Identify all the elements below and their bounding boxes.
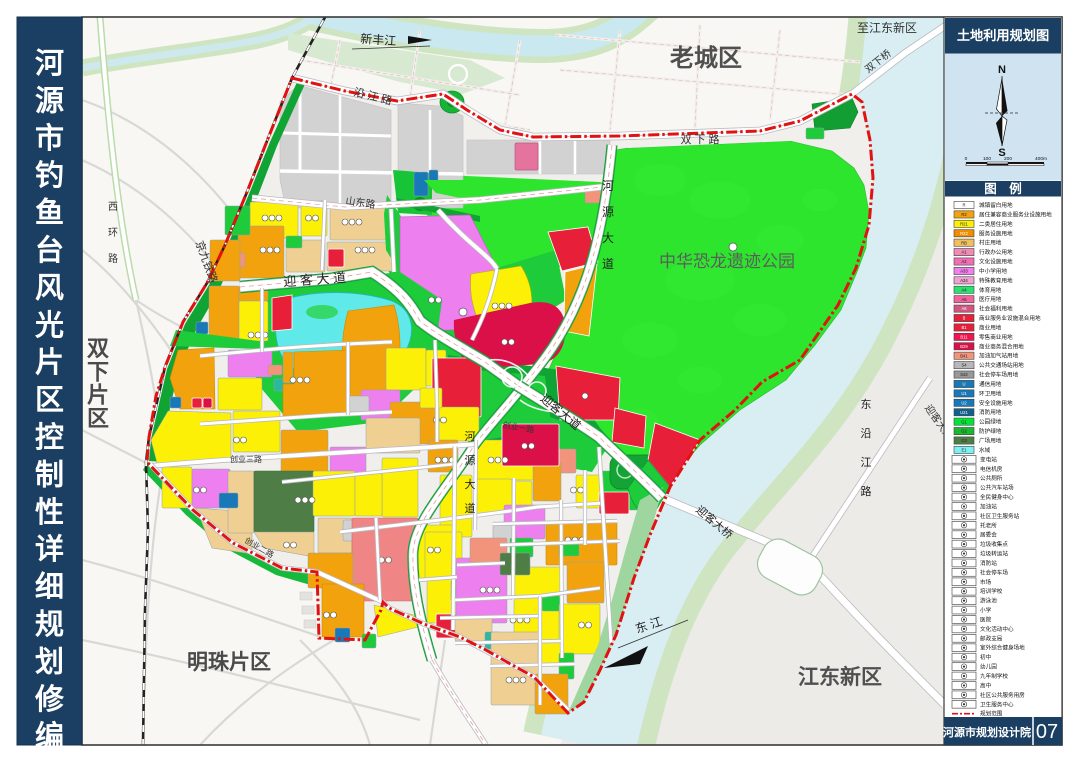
svg-text:片: 片 xyxy=(87,383,109,408)
svg-text:中华恐龙遗迹公园: 中华恐龙遗迹公园 xyxy=(659,252,795,271)
svg-text:R21: R21 xyxy=(960,221,968,226)
svg-text:沿: 沿 xyxy=(861,427,872,440)
svg-text:河: 河 xyxy=(35,47,64,80)
svg-text:片: 片 xyxy=(35,346,64,379)
svg-text:G2: G2 xyxy=(961,429,967,434)
svg-text:规划范围: 规划范围 xyxy=(980,710,1003,718)
svg-text:A1: A1 xyxy=(961,250,967,255)
svg-text:公园绿地: 公园绿地 xyxy=(979,418,1002,426)
svg-text:文化设施用地: 文化设施用地 xyxy=(979,258,1013,266)
svg-text:道: 道 xyxy=(602,257,614,271)
svg-text:培训学校: 培训学校 xyxy=(980,587,1003,595)
svg-text:小学: 小学 xyxy=(980,606,992,614)
svg-text:A4: A4 xyxy=(961,287,967,292)
svg-text:河源市规划设计院: 河源市规划设计院 xyxy=(943,725,1031,739)
svg-text:市: 市 xyxy=(35,121,64,155)
svg-text:控: 控 xyxy=(35,421,64,454)
svg-text:消防站: 消防站 xyxy=(980,559,997,567)
svg-text:创业三路: 创业三路 xyxy=(230,454,262,464)
svg-text:村庄用地: 村庄用地 xyxy=(979,239,1002,247)
svg-text:社区公共服务用房: 社区公共服务用房 xyxy=(980,691,1025,699)
svg-text:文化活动中心: 文化活动中心 xyxy=(980,625,1014,633)
svg-text:商业服务业设施混合用地: 商业服务业设施混合用地 xyxy=(979,314,1041,322)
svg-text:A6: A6 xyxy=(961,306,967,311)
svg-text:托老所: 托老所 xyxy=(980,521,997,529)
svg-text:规: 规 xyxy=(35,608,64,641)
svg-text:双 下 路: 双 下 路 xyxy=(680,133,719,146)
svg-text:特殊教育用地: 特殊教育用地 xyxy=(979,276,1013,284)
svg-text:零售商业用地: 零售商业用地 xyxy=(979,333,1013,341)
svg-text:城镇留白用地: 城镇留白用地 xyxy=(979,201,1013,209)
svg-text:市场: 市场 xyxy=(980,578,992,586)
svg-text:修: 修 xyxy=(34,683,65,716)
svg-text:安全设施用地: 安全设施用地 xyxy=(979,399,1013,407)
svg-text:服务设施用地: 服务设施用地 xyxy=(979,229,1013,237)
svg-text:老城区: 老城区 xyxy=(670,44,742,72)
svg-text:200: 200 xyxy=(1004,156,1012,162)
svg-text:高中: 高中 xyxy=(980,681,992,689)
svg-text:划: 划 xyxy=(35,645,64,678)
svg-text:广场用地: 广场用地 xyxy=(979,437,1002,445)
svg-text:B41: B41 xyxy=(960,353,968,358)
svg-text:体育用地: 体育用地 xyxy=(979,286,1002,294)
svg-text:钓: 钓 xyxy=(35,159,64,192)
svg-text:水域: 水域 xyxy=(979,446,991,454)
svg-text:源: 源 xyxy=(602,205,614,219)
svg-text:道: 道 xyxy=(465,501,476,515)
svg-text:路: 路 xyxy=(108,252,118,265)
svg-text:光: 光 xyxy=(35,309,64,342)
svg-text:B: B xyxy=(963,316,966,321)
svg-text:室外综合健身场地: 室外综合健身场地 xyxy=(980,644,1025,652)
svg-text:区: 区 xyxy=(35,385,64,417)
svg-text:S42: S42 xyxy=(960,372,968,377)
svg-text:幼儿园: 幼儿园 xyxy=(980,663,997,671)
svg-text:R: R xyxy=(962,203,965,208)
svg-text:江东新区: 江东新区 xyxy=(798,665,882,689)
svg-text:性: 性 xyxy=(35,496,64,529)
svg-text:鱼: 鱼 xyxy=(35,197,64,230)
svg-text:U: U xyxy=(962,382,965,387)
svg-text:防护绿地: 防护绿地 xyxy=(979,427,1002,435)
svg-text:河: 河 xyxy=(465,430,476,443)
svg-text:初中: 初中 xyxy=(980,653,992,661)
svg-text:R2: R2 xyxy=(961,212,967,217)
svg-text:医院: 医院 xyxy=(980,615,992,623)
svg-text:细: 细 xyxy=(35,570,64,604)
svg-text:B11: B11 xyxy=(960,334,968,339)
svg-text:A2: A2 xyxy=(961,259,967,264)
svg-text:变电站: 变电站 xyxy=(980,455,997,463)
svg-text:公共汽车站场: 公共汽车站场 xyxy=(980,484,1014,492)
svg-text:社会停车场用地: 社会停车场用地 xyxy=(979,371,1019,379)
svg-text:S4: S4 xyxy=(961,363,967,368)
svg-text:电信机房: 电信机房 xyxy=(980,465,1003,473)
svg-text:商业商务混合用地: 商业商务混合用地 xyxy=(979,342,1024,350)
svg-text:居住兼容商业服务业设施用地: 居住兼容商业服务业设施用地 xyxy=(979,210,1052,218)
svg-text:行政办公用地: 行政办公用地 xyxy=(979,248,1013,256)
svg-text:路: 路 xyxy=(861,485,872,498)
svg-text:通信用地: 通信用地 xyxy=(979,380,1002,388)
svg-text:A34: A34 xyxy=(960,278,968,283)
svg-text:源: 源 xyxy=(35,84,64,117)
svg-text:中小学用地: 中小学用地 xyxy=(979,267,1007,275)
svg-text:0: 0 xyxy=(965,156,968,162)
svg-text:A5: A5 xyxy=(961,297,967,302)
svg-text:邮政支局: 邮政支局 xyxy=(980,634,1003,642)
svg-text:U2: U2 xyxy=(961,400,967,405)
svg-text:加油站: 加油站 xyxy=(980,502,997,510)
svg-text:社区卫生服务站: 社区卫生服务站 xyxy=(980,512,1020,520)
svg-text:明珠片区: 明珠片区 xyxy=(187,651,271,674)
svg-text:源: 源 xyxy=(465,453,476,467)
svg-text:河: 河 xyxy=(602,179,614,193)
svg-text:垃圾转运站: 垃圾转运站 xyxy=(980,550,1008,558)
svg-text:二类居住用地: 二类居住用地 xyxy=(979,220,1013,228)
svg-text:100: 100 xyxy=(983,156,991,162)
svg-text:东: 东 xyxy=(861,398,872,411)
svg-text:U1: U1 xyxy=(961,391,967,396)
svg-text:垃圾收集点: 垃圾收集点 xyxy=(980,540,1008,548)
svg-text:至江东新区: 至江东新区 xyxy=(857,20,917,35)
svg-text:台: 台 xyxy=(35,233,64,267)
svg-text:B1: B1 xyxy=(961,325,967,330)
svg-text:卫生服务中心: 卫生服务中心 xyxy=(980,700,1014,708)
svg-text:环卫用地: 环卫用地 xyxy=(979,389,1002,397)
svg-text:环: 环 xyxy=(108,228,118,239)
svg-text:公共交通场站用地: 公共交通场站用地 xyxy=(979,361,1024,369)
svg-text:N: N xyxy=(998,64,1006,76)
svg-text:新丰江: 新丰江 xyxy=(360,31,397,48)
svg-text:居委会: 居委会 xyxy=(980,531,997,539)
svg-text:全民健身中心: 全民健身中心 xyxy=(980,493,1014,501)
svg-text:土地利用规划图: 土地利用规划图 xyxy=(957,27,1049,43)
svg-text:公共厕所: 公共厕所 xyxy=(980,474,1003,482)
svg-text:编: 编 xyxy=(35,719,64,753)
svg-text:区: 区 xyxy=(87,406,109,431)
svg-text:双: 双 xyxy=(87,336,109,361)
svg-text:U21: U21 xyxy=(960,410,968,415)
svg-text:大: 大 xyxy=(602,231,614,245)
svg-text:社会福利用地: 社会福利用地 xyxy=(979,305,1013,313)
svg-text:详: 详 xyxy=(35,532,64,566)
svg-text:制: 制 xyxy=(35,458,64,491)
svg-text:游泳池: 游泳池 xyxy=(980,597,997,605)
svg-text:商业用地: 商业用地 xyxy=(979,323,1002,331)
svg-text:400m: 400m xyxy=(1035,156,1047,162)
svg-text:R22: R22 xyxy=(960,231,968,236)
svg-text:07: 07 xyxy=(1036,721,1058,743)
svg-text:加油加气站用地: 加油加气站用地 xyxy=(979,352,1019,360)
svg-text:西: 西 xyxy=(108,202,118,213)
svg-text:G3: G3 xyxy=(961,438,967,443)
svg-text:医疗用地: 医疗用地 xyxy=(979,295,1002,303)
svg-text:江: 江 xyxy=(861,456,872,469)
svg-text:九年制学校: 九年制学校 xyxy=(980,672,1008,680)
svg-text:社会停车场: 社会停车场 xyxy=(980,568,1008,576)
svg-text:消防用地: 消防用地 xyxy=(979,408,1002,416)
svg-text:G1: G1 xyxy=(961,419,967,424)
svg-text:E1: E1 xyxy=(961,448,967,453)
svg-text:图 例: 图 例 xyxy=(984,181,1022,196)
svg-text:B29: B29 xyxy=(960,344,968,349)
svg-text:下: 下 xyxy=(87,359,109,384)
svg-text:大: 大 xyxy=(465,477,476,491)
svg-text:风: 风 xyxy=(35,272,64,304)
svg-text:A33: A33 xyxy=(960,269,968,274)
svg-text:RB: RB xyxy=(961,240,967,245)
